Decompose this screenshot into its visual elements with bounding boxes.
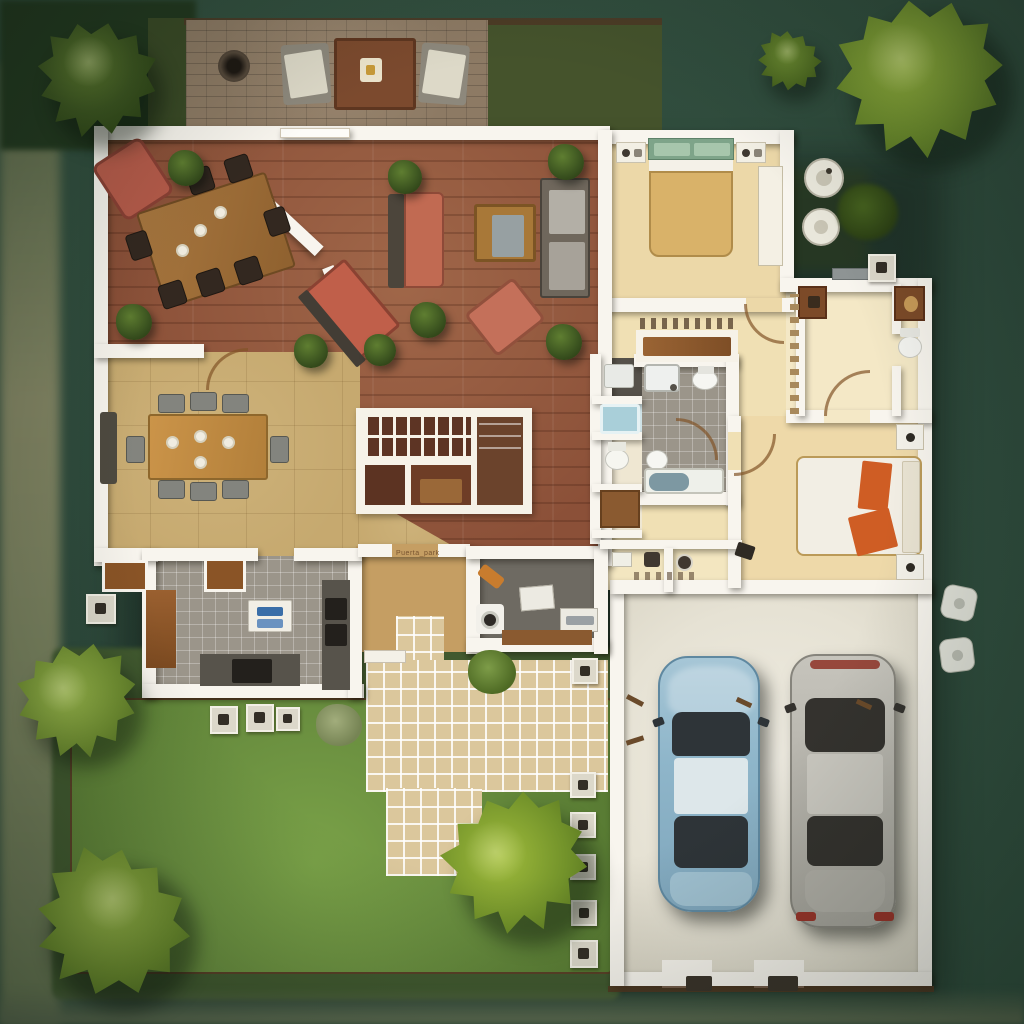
- patio-bench: [364, 650, 406, 663]
- patio-chair-left: [280, 43, 331, 105]
- bath-toilet: [692, 366, 720, 392]
- bed3-orange-a: [858, 461, 893, 512]
- plant: [546, 324, 582, 360]
- dining2-chair: [222, 394, 249, 413]
- wall-toilet-niche-b: [892, 366, 901, 416]
- bush-dark: [838, 184, 898, 240]
- cushion: [422, 49, 466, 98]
- bed1-pillow-b: [694, 143, 730, 156]
- plant: [116, 304, 152, 340]
- drain: [670, 384, 677, 391]
- nightstand-b: [736, 142, 766, 163]
- storage-desk: [420, 479, 462, 503]
- basin: [808, 296, 820, 308]
- dining2-chair: [270, 436, 289, 463]
- table-dot: [826, 168, 832, 174]
- lamp: [622, 149, 630, 157]
- closet-rails: [790, 294, 799, 414]
- dining2-chair: [126, 436, 145, 463]
- coffee-table-top: [492, 215, 524, 257]
- garden-cube-b: [938, 636, 976, 674]
- car-blue: [658, 656, 760, 912]
- wall-kitchen-top-b: [294, 548, 362, 561]
- paver: [572, 658, 598, 684]
- island-sink-b: [257, 619, 283, 628]
- paver: [570, 772, 596, 798]
- cooktop: [232, 659, 272, 683]
- dining2-chair: [158, 394, 185, 413]
- console-panel-b: [549, 242, 585, 290]
- kitchen-cabinet-b: [204, 558, 246, 592]
- top-lawn-right: [486, 20, 662, 130]
- car-blue-roof: [674, 758, 748, 814]
- patio-door-slab: [280, 128, 350, 138]
- toilet-tank: [900, 328, 920, 337]
- util-toilet2: [604, 442, 630, 472]
- toilet-bowl: [898, 336, 922, 358]
- cube-dot: [953, 597, 966, 610]
- dining2-plate: [166, 436, 179, 449]
- car-taillight: [796, 912, 816, 921]
- car-blue-rear-window: [674, 816, 748, 868]
- car-mirror: [784, 702, 797, 713]
- dining2-chair: [222, 480, 249, 499]
- paver-dark: [686, 976, 712, 991]
- floor-plan-canvas: Puerta_park: [0, 0, 1024, 1024]
- wardrobe: [758, 166, 783, 266]
- dining-cup: [176, 244, 189, 257]
- bed3: [796, 456, 922, 556]
- storage-shelves: [477, 417, 523, 505]
- wine-rack: [365, 417, 471, 459]
- bush-sage: [316, 704, 362, 746]
- nightstand-a: [616, 142, 646, 163]
- wall-laundry-right: [594, 546, 608, 654]
- plant: [294, 334, 328, 368]
- paver: [210, 706, 238, 734]
- wall-utilcol-div1: [592, 396, 642, 404]
- toilet-tank: [698, 366, 714, 374]
- bed3-nightstand-b: [896, 554, 924, 580]
- wall-dining-bottom: [94, 344, 204, 358]
- wall-garage-top: [610, 580, 932, 594]
- kitchen-counter-bottom: [200, 654, 300, 686]
- paver: [570, 940, 598, 968]
- plant: [364, 334, 396, 366]
- shelf-lines: [479, 419, 521, 449]
- storage-unit: [356, 408, 532, 514]
- dining2-chair: [190, 482, 217, 501]
- garden-table-a: [804, 158, 844, 198]
- washer-door: [481, 611, 499, 629]
- wc-dashes: [634, 572, 694, 580]
- basin: [904, 296, 918, 312]
- bed1: [648, 138, 734, 260]
- coffee-table: [474, 204, 536, 262]
- paver: [276, 707, 300, 731]
- toilet-bowl: [605, 449, 629, 470]
- storage-cabinet-b: [411, 465, 471, 505]
- bush: [468, 650, 516, 694]
- util-toilet: [896, 328, 924, 360]
- dining-cup: [194, 224, 207, 237]
- deco: [754, 149, 762, 157]
- wall-laundry-top: [466, 546, 608, 559]
- kitchen-island: [248, 600, 292, 632]
- washer: [476, 604, 504, 634]
- deco: [634, 149, 642, 157]
- kitchen-counter-right: [322, 580, 350, 690]
- dining-cup: [214, 206, 227, 219]
- tub-water: [649, 473, 689, 491]
- car-silver-windshield: [805, 698, 885, 752]
- wall-top-main: [94, 126, 610, 140]
- wc-fixture-a: [612, 552, 632, 567]
- car-blue-trunk: [670, 872, 752, 906]
- bed1-sheet: [649, 160, 733, 171]
- dining2-table: [148, 414, 268, 480]
- fire-pit: [218, 50, 250, 82]
- car-silver-rear-window: [807, 816, 883, 866]
- toilet-bowl: [646, 450, 668, 470]
- cooktop: [325, 624, 347, 646]
- island-sink-a: [257, 607, 283, 616]
- storage-cabinet-a: [365, 465, 405, 505]
- wc-fixture-c: [676, 554, 693, 571]
- car-silver-red-top: [810, 660, 880, 669]
- plant: [410, 302, 446, 338]
- living-sofa: [404, 192, 444, 288]
- lamp: [906, 433, 915, 442]
- living-sofa-back: [388, 194, 405, 288]
- cushion: [284, 49, 328, 98]
- kitchen-cabinet-a: [102, 560, 148, 592]
- bed1-headboard: [648, 138, 734, 160]
- laundry-appliance-b: [560, 608, 598, 632]
- media-console: [540, 178, 590, 298]
- dresser-wood: [643, 337, 731, 356]
- util-wood-dresser: [600, 490, 640, 528]
- dining2-plate: [194, 430, 207, 443]
- bed3-nightstand-a: [896, 424, 924, 450]
- bed1-blanket: [649, 171, 733, 257]
- dining2-chair: [190, 392, 217, 411]
- toilet-tank: [608, 442, 626, 451]
- car-silver: [790, 654, 896, 928]
- dresser: [636, 330, 738, 362]
- wall-kitchen-right: [348, 550, 362, 698]
- wall-utilcol-div4: [592, 530, 642, 538]
- kitchen-wood-strip: [146, 590, 176, 668]
- bed3-orange-b: [848, 508, 898, 557]
- patio-chair-right: [418, 42, 470, 105]
- garden-table-b: [802, 208, 840, 246]
- bath-sink: [644, 364, 680, 392]
- car-mirror: [652, 716, 665, 727]
- candle: [366, 65, 375, 75]
- dining2-plate: [194, 456, 207, 469]
- car-silver-roof: [807, 754, 883, 814]
- util-bluesink: [600, 404, 640, 434]
- car-taillight: [874, 912, 894, 921]
- table-center: [814, 220, 828, 234]
- console-panel-a: [549, 190, 585, 234]
- plant: [548, 144, 584, 180]
- laundry-appliance-a: [519, 585, 555, 612]
- util-cabinet-b: [894, 286, 925, 321]
- dining2-bench: [100, 412, 117, 484]
- paver: [246, 704, 274, 732]
- util-cabinet-a: [798, 286, 827, 319]
- wc-fixture-b: [644, 552, 660, 567]
- left-road-strip: [0, 64, 60, 1024]
- lamp: [742, 149, 750, 157]
- wall-garage-left: [610, 586, 624, 986]
- car-blue-windshield: [672, 712, 750, 756]
- dresser-combs: [640, 318, 734, 329]
- car-blue-hood-shine: [668, 666, 754, 718]
- dining2-chair: [158, 480, 185, 499]
- cooktop: [325, 598, 347, 620]
- plant: [168, 150, 204, 186]
- car-silver-trunk: [805, 870, 885, 912]
- paver-dark: [768, 976, 798, 991]
- paver: [86, 594, 116, 624]
- cube-dot: [951, 649, 963, 661]
- floor-label: Puerta_park: [396, 548, 486, 560]
- bed3-pillow-strip: [902, 461, 920, 553]
- dining2-plate: [222, 436, 235, 449]
- laundry-shelf: [502, 630, 592, 645]
- bed1-pillow-a: [654, 143, 690, 156]
- util-sink1: [604, 364, 634, 388]
- plant: [388, 160, 422, 194]
- wall-wc-div: [664, 548, 673, 592]
- patio-table-item: [360, 58, 382, 82]
- paver: [868, 254, 896, 282]
- bathtub: [644, 468, 724, 494]
- lamp: [906, 563, 915, 572]
- controls: [566, 616, 594, 625]
- wall-right-garage: [918, 586, 932, 986]
